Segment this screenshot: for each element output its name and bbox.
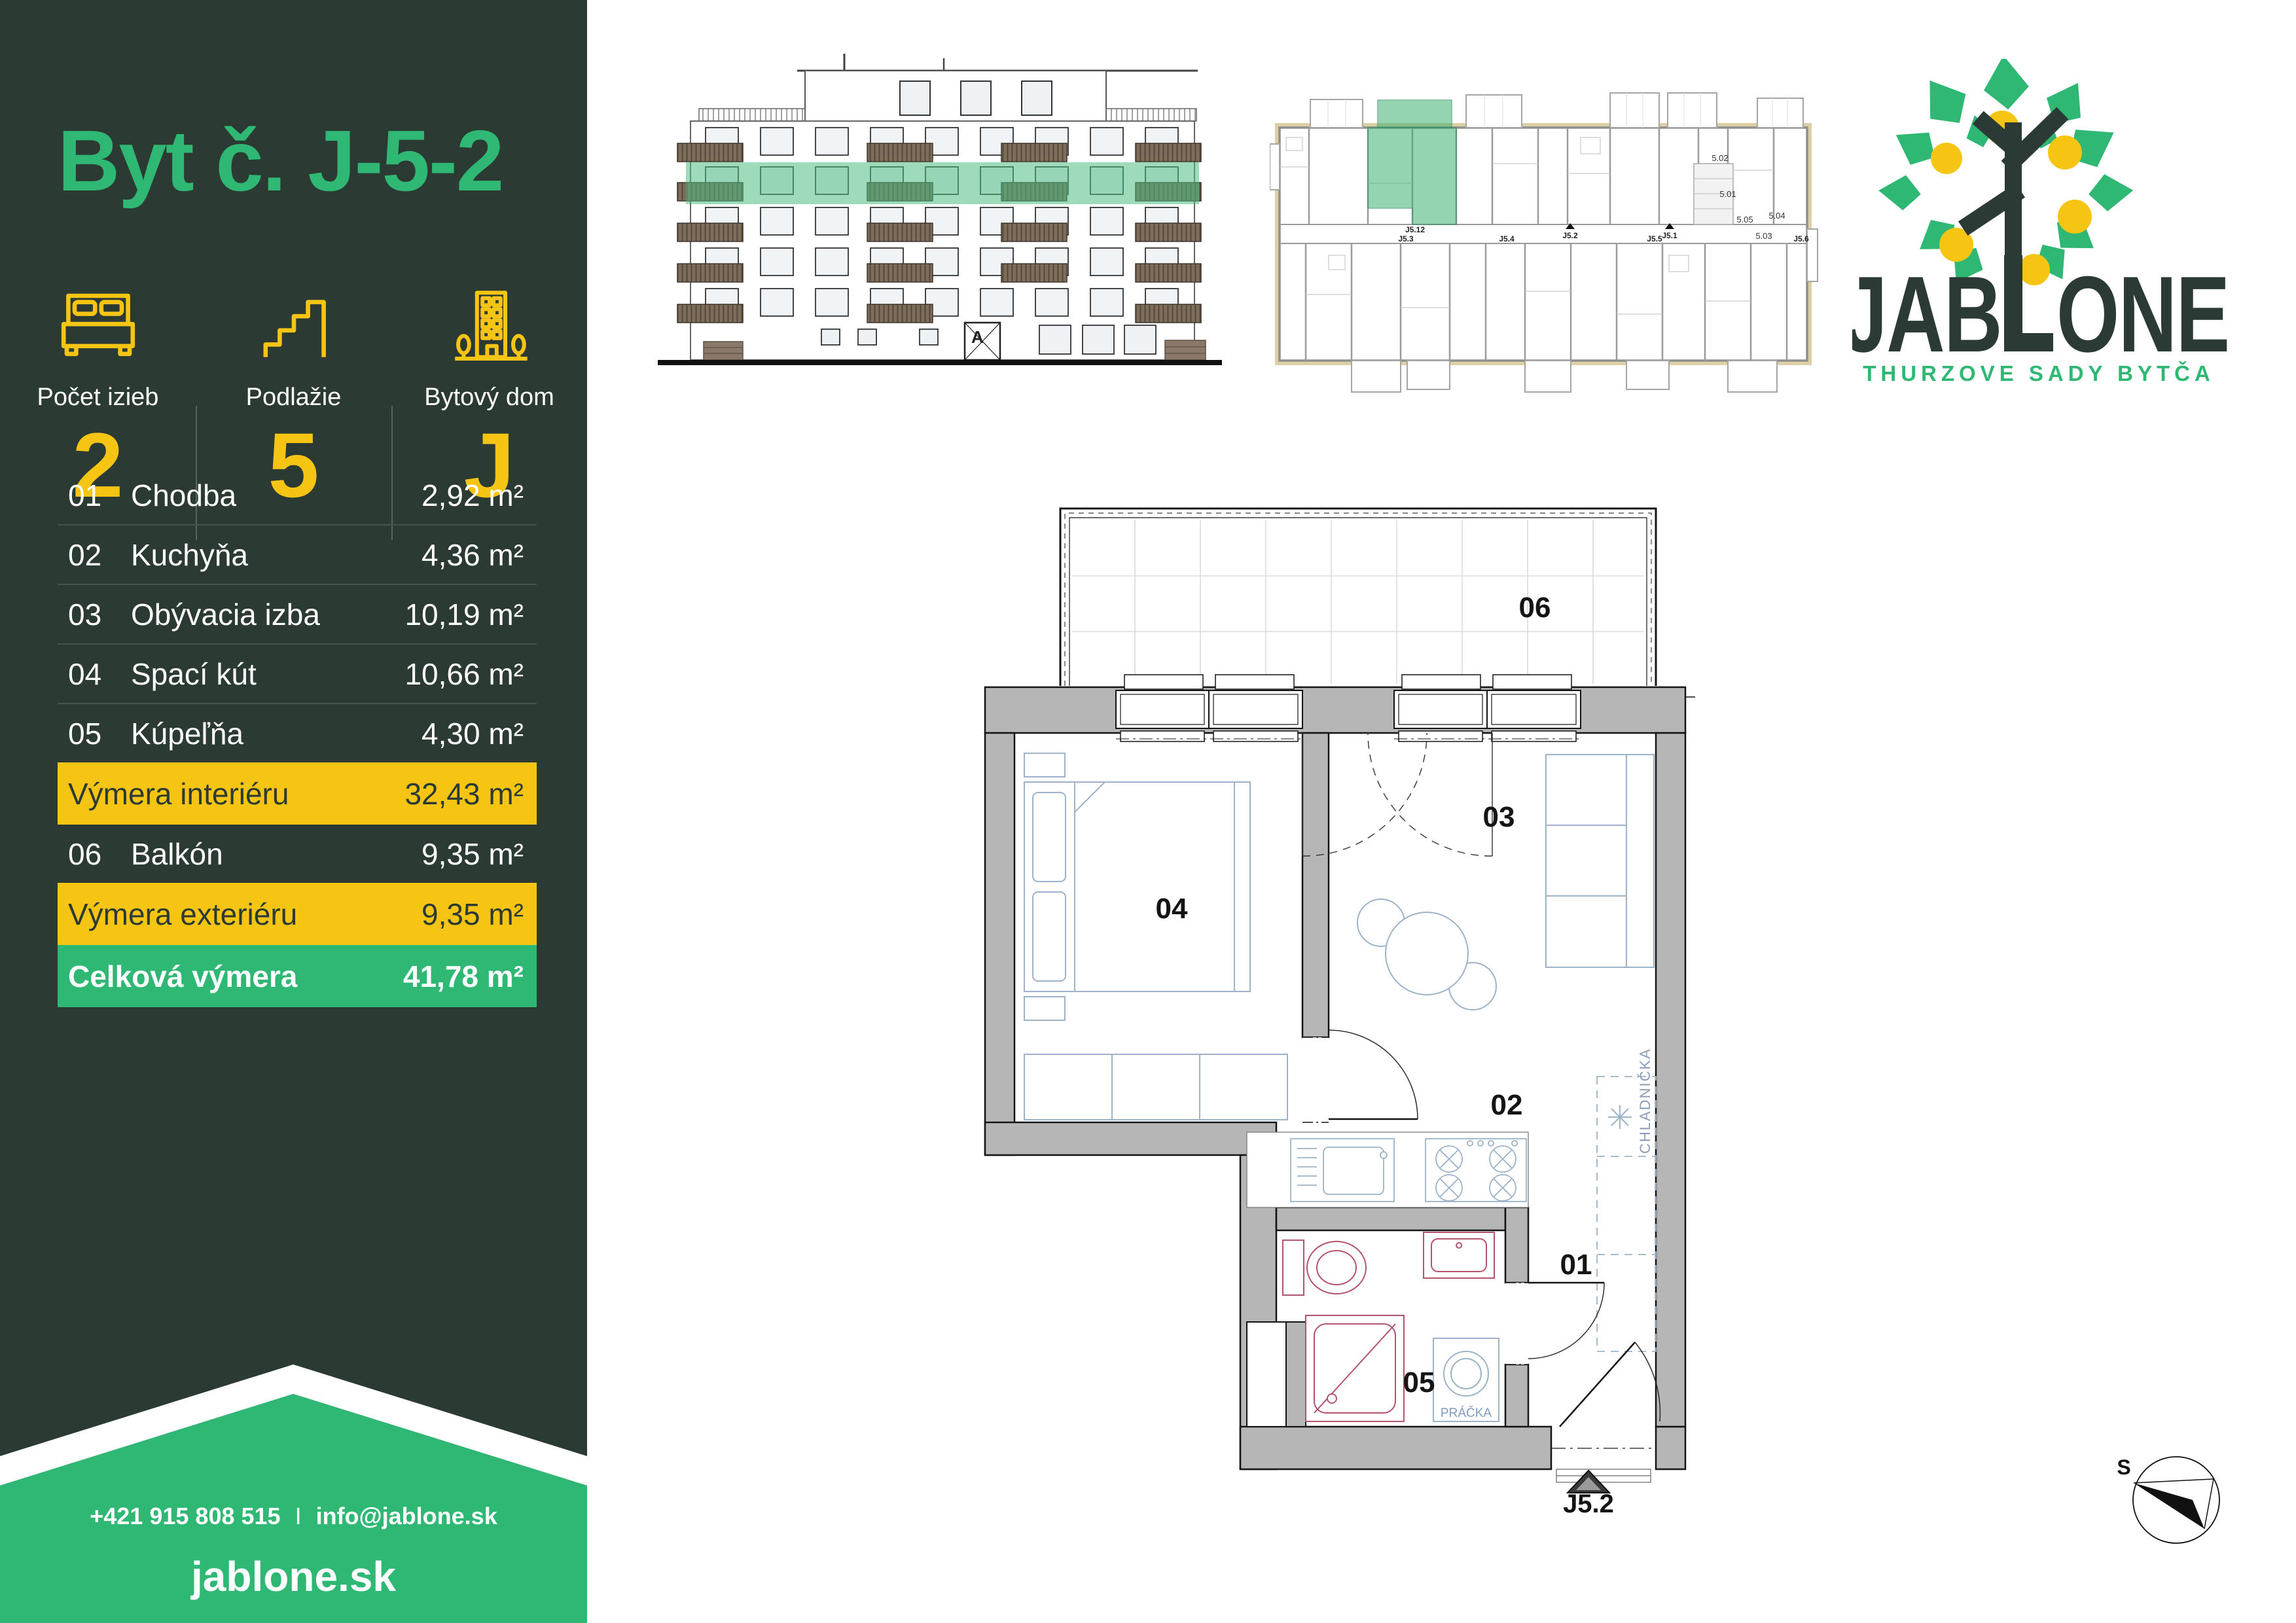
stat-rooms-label: Počet izieb: [37, 383, 159, 412]
email: info@jablone.sk: [316, 1503, 497, 1529]
entrance-code: J5.2: [1563, 1489, 1614, 1515]
row-name: Chodba: [131, 478, 422, 513]
stat-floor-label: Podlažie: [246, 383, 342, 412]
contact-separator: I: [295, 1503, 302, 1530]
interior-area-row: Výmera interiéru 32,43 m²: [58, 762, 537, 825]
room-label-living: 03: [1483, 801, 1515, 833]
room-label-kitchen: 02: [1491, 1089, 1523, 1121]
row-num: 03: [58, 597, 131, 632]
row-name: Balkón: [131, 836, 422, 872]
corridor-label: J5.12: [1405, 225, 1425, 234]
row-num: 01: [58, 478, 131, 513]
row-num: 05: [58, 716, 131, 751]
row-name: Kúpeľňa: [131, 716, 422, 751]
sum-area: 32,43 m²: [404, 776, 537, 811]
table-row: 03 Obývacia izba 10,19 m²: [58, 584, 537, 643]
dining-table: [1357, 899, 1496, 1010]
entrance-a-label: A: [971, 327, 984, 347]
siteplan-label: 5.04: [1768, 211, 1785, 221]
row-num: 02: [58, 537, 131, 573]
row-name: Obývacia izba: [131, 597, 404, 632]
row-name: Spací kút: [131, 656, 404, 692]
room-table: 01 Chodba 2,92 m² 02 Kuchyňa 4,36 m² 03 …: [58, 466, 537, 1007]
highlighted-unit-balcony: [1378, 100, 1452, 128]
compass-north-label: S: [2117, 1455, 2130, 1479]
corridor-label: J5.1: [1662, 231, 1677, 240]
sum-label: Celková výmera: [58, 959, 403, 994]
contact-line: +421 915 808 515Iinfo@jablone.sk: [0, 1503, 587, 1530]
shower-icon: [1306, 1315, 1404, 1421]
shaft: [1247, 1322, 1286, 1427]
corridor-label: J5.6: [1793, 234, 1809, 243]
sum-label: Výmera exteriéru: [58, 897, 422, 932]
table-row: 04 Spací kút 10,66 m²: [58, 643, 537, 703]
apartment-floorplan: CHLADNIČKA: [975, 494, 1695, 1515]
sum-label: Výmera interiéru: [58, 776, 404, 811]
room-label-balcony: 06: [1519, 592, 1551, 624]
table-row: 05 Kúpeľňa 4,30 m²: [58, 703, 537, 762]
compass-icon: S: [2111, 1450, 2229, 1548]
corridor-label: J5.4: [1499, 234, 1515, 243]
exterior-area-row: Výmera exteriéru 9,35 m²: [58, 883, 537, 945]
row-area: 10,66 m²: [404, 656, 537, 692]
row-area: 4,36 m²: [422, 537, 537, 573]
page-title: Byt č. J-5-2: [58, 111, 503, 210]
corridor-label: J5.2: [1562, 231, 1578, 240]
siteplan-label: 5.05: [1736, 215, 1753, 224]
row-area: 9,35 m²: [422, 836, 537, 872]
phone-number: +421 915 808 515: [90, 1503, 280, 1529]
bathroom-door: [1505, 1283, 1604, 1364]
bathroom-sink-icon: [1424, 1232, 1494, 1278]
row-area: 2,92 m²: [422, 478, 537, 513]
stove-icon: [1426, 1139, 1526, 1202]
bed: [1024, 753, 1250, 1020]
bed-icon: [59, 288, 137, 366]
stairs-icon: [255, 288, 333, 366]
fridge-label: CHLADNIČKA: [1637, 1048, 1653, 1154]
wardrobe: [1024, 1054, 1287, 1120]
logo-tagline: THURZOVE SADY BYTČA: [1863, 361, 2215, 385]
table-row: 06 Balkón 9,35 m²: [58, 825, 537, 883]
sidebar: Byt č. J-5-2 Počet izieb 2 Podlažie: [0, 0, 587, 1623]
stat-building-label: Bytový dom: [424, 383, 554, 412]
balcony: [1060, 508, 1656, 686]
room-label-bedroom: 04: [1156, 893, 1188, 925]
corridor-label: J5.3: [1398, 234, 1414, 243]
table-row: 01 Chodba 2,92 m²: [58, 466, 537, 524]
siteplan-label: 5.01: [1719, 189, 1736, 199]
table-row: 02 Kuchyňa 4,36 m²: [58, 524, 537, 584]
room-label-hall: 01: [1560, 1249, 1592, 1281]
wordmark-right: ONE: [2056, 254, 2229, 374]
sum-area: 41,78 m²: [403, 959, 537, 994]
bedroom-door: [1302, 1030, 1418, 1122]
row-area: 4,30 m²: [422, 716, 537, 751]
toilet-icon: [1283, 1240, 1366, 1295]
wordmark-left: JAB: [1852, 254, 2001, 374]
building-icon: [450, 288, 529, 366]
entrance-door: [1551, 1342, 1660, 1482]
sink-icon: [1291, 1139, 1394, 1202]
row-num: 04: [58, 656, 131, 692]
row-num: 06: [58, 836, 131, 872]
sum-area: 9,35 m²: [422, 897, 537, 932]
floor-overview-plan: 5.02 5.01 5.05 5.04 5.03 J5.12 J5.3 J5.4…: [1270, 33, 1859, 409]
washer-label: PRÁČKA: [1441, 1406, 1492, 1420]
row-area: 10,19 m²: [404, 597, 537, 632]
row-name: Kuchyňa: [131, 537, 422, 573]
jablone-logo: JAB ONE THURZOVE SADY BYTČA: [1852, 59, 2245, 399]
fridge-star-icon: [1608, 1105, 1632, 1129]
total-area-row: Celková výmera 41,78 m²: [58, 945, 537, 1007]
sofa: [1546, 755, 1654, 967]
siteplan-label: 5.02: [1712, 153, 1728, 163]
corridor-label: J5.5: [1647, 234, 1662, 243]
room-label-bath: 05: [1403, 1366, 1435, 1399]
siteplan-label: 5.03: [1755, 231, 1772, 241]
building-elevation-drawing: A: [648, 52, 1237, 380]
website: jablone.sk: [0, 1552, 587, 1601]
apartment-datasheet: Byt č. J-5-2 Počet izieb 2 Podlažie: [0, 0, 2296, 1623]
